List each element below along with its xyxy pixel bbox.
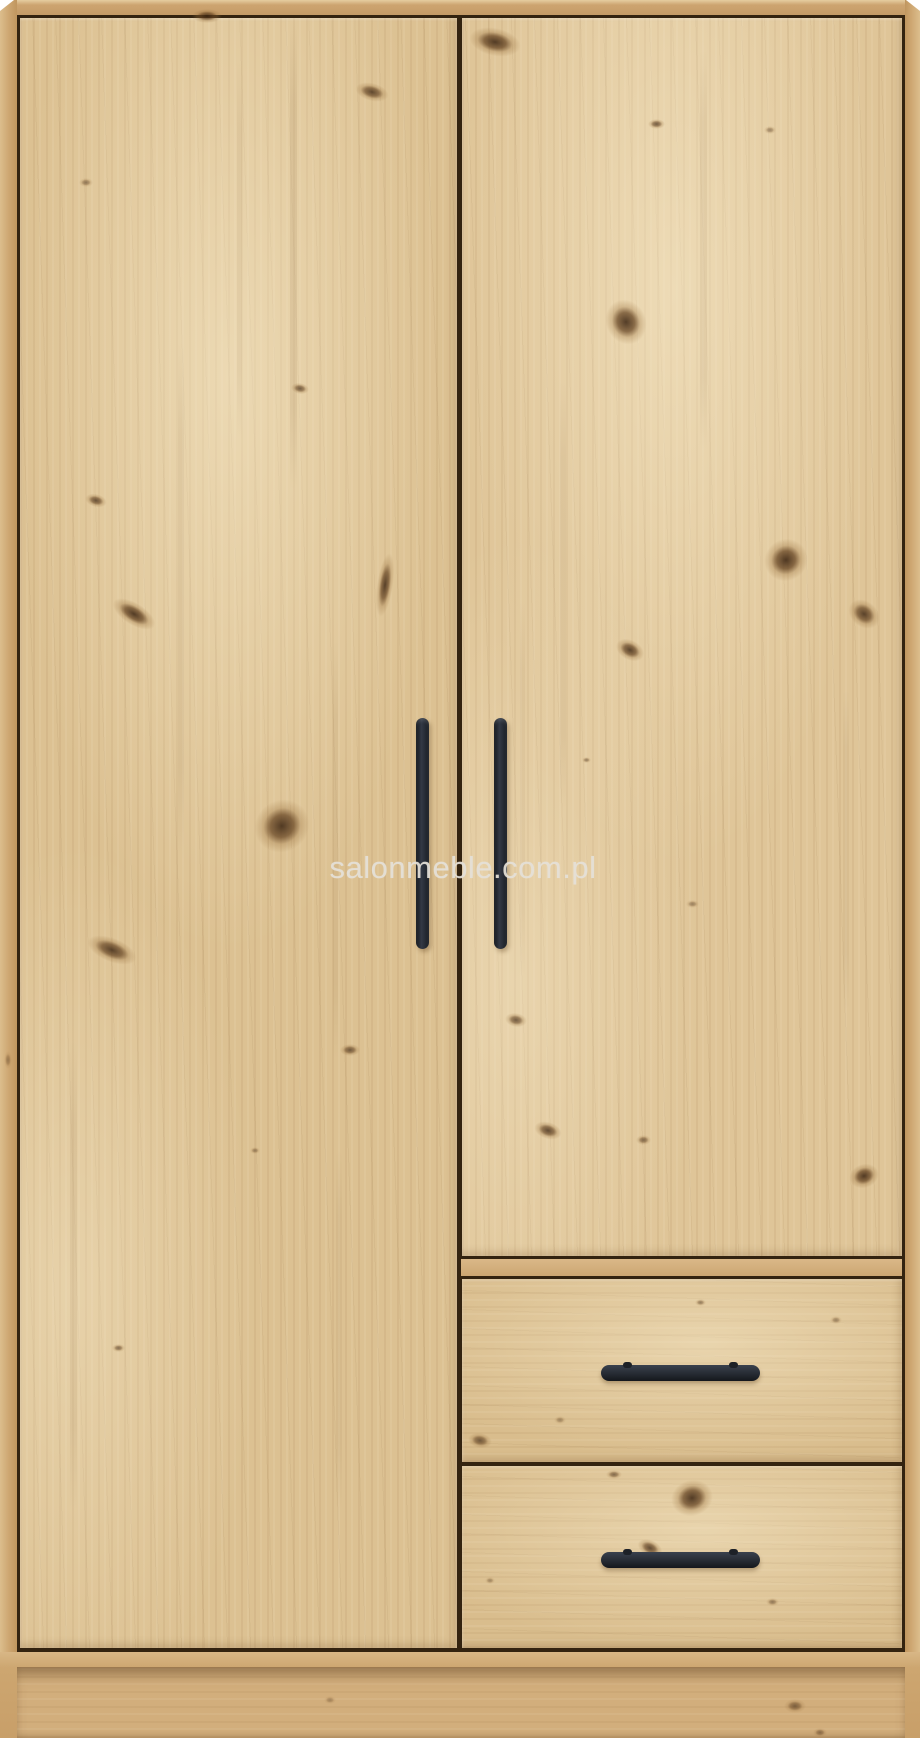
right-door-handle: [494, 718, 507, 949]
wardrobe-top-edge: [0, 0, 920, 15]
product-photo: salonmeble.com.pl: [0, 0, 920, 1745]
drawer-top-handle: [601, 1365, 760, 1381]
wardrobe-right-side: [905, 0, 920, 1738]
left-door-handle: [416, 718, 429, 949]
plinth: [0, 1652, 920, 1738]
right-door: [462, 18, 902, 1256]
carcass-strip: [461, 1259, 902, 1276]
wardrobe-left-side: [0, 0, 17, 1738]
watermark-text: salonmeble.com.pl: [233, 850, 693, 886]
drawer-bottom-handle: [601, 1552, 760, 1568]
left-door: [20, 18, 457, 1648]
plinth-recess-panel: [17, 1667, 905, 1738]
